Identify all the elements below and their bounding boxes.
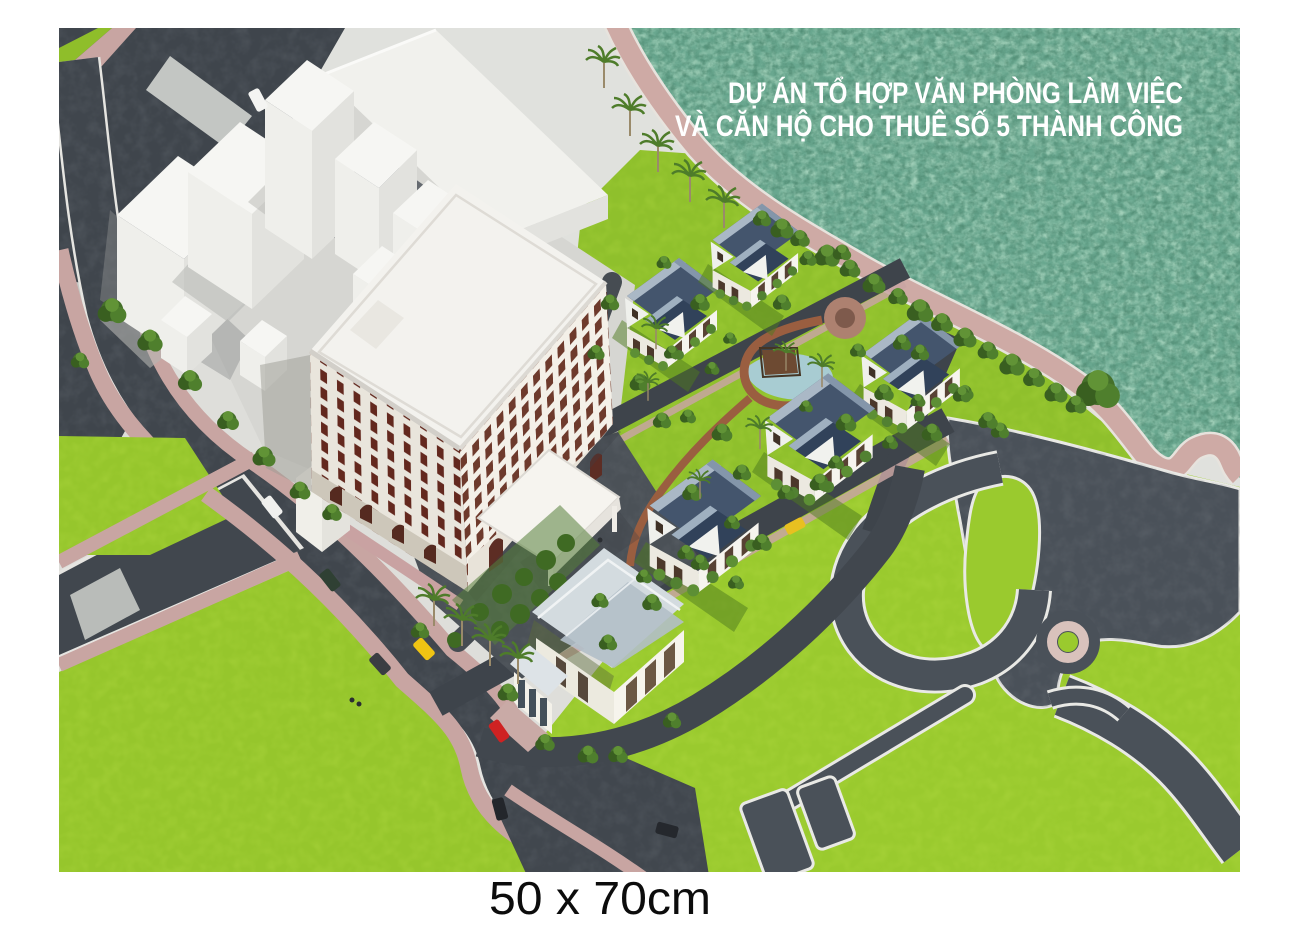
svg-text:DỰ ÁN TỔ HỢP VĂN PHÒNG LÀM VIỆ: DỰ ÁN TỔ HỢP VĂN PHÒNG LÀM VIỆC [728, 76, 1183, 110]
svg-text:50 x 70cm: 50 x 70cm [489, 872, 711, 924]
svg-text:VÀ CĂN HỘ CHO THUÊ SỐ 5 THÀNH: VÀ CĂN HỘ CHO THUÊ SỐ 5 THÀNH CÔNG [675, 109, 1183, 143]
